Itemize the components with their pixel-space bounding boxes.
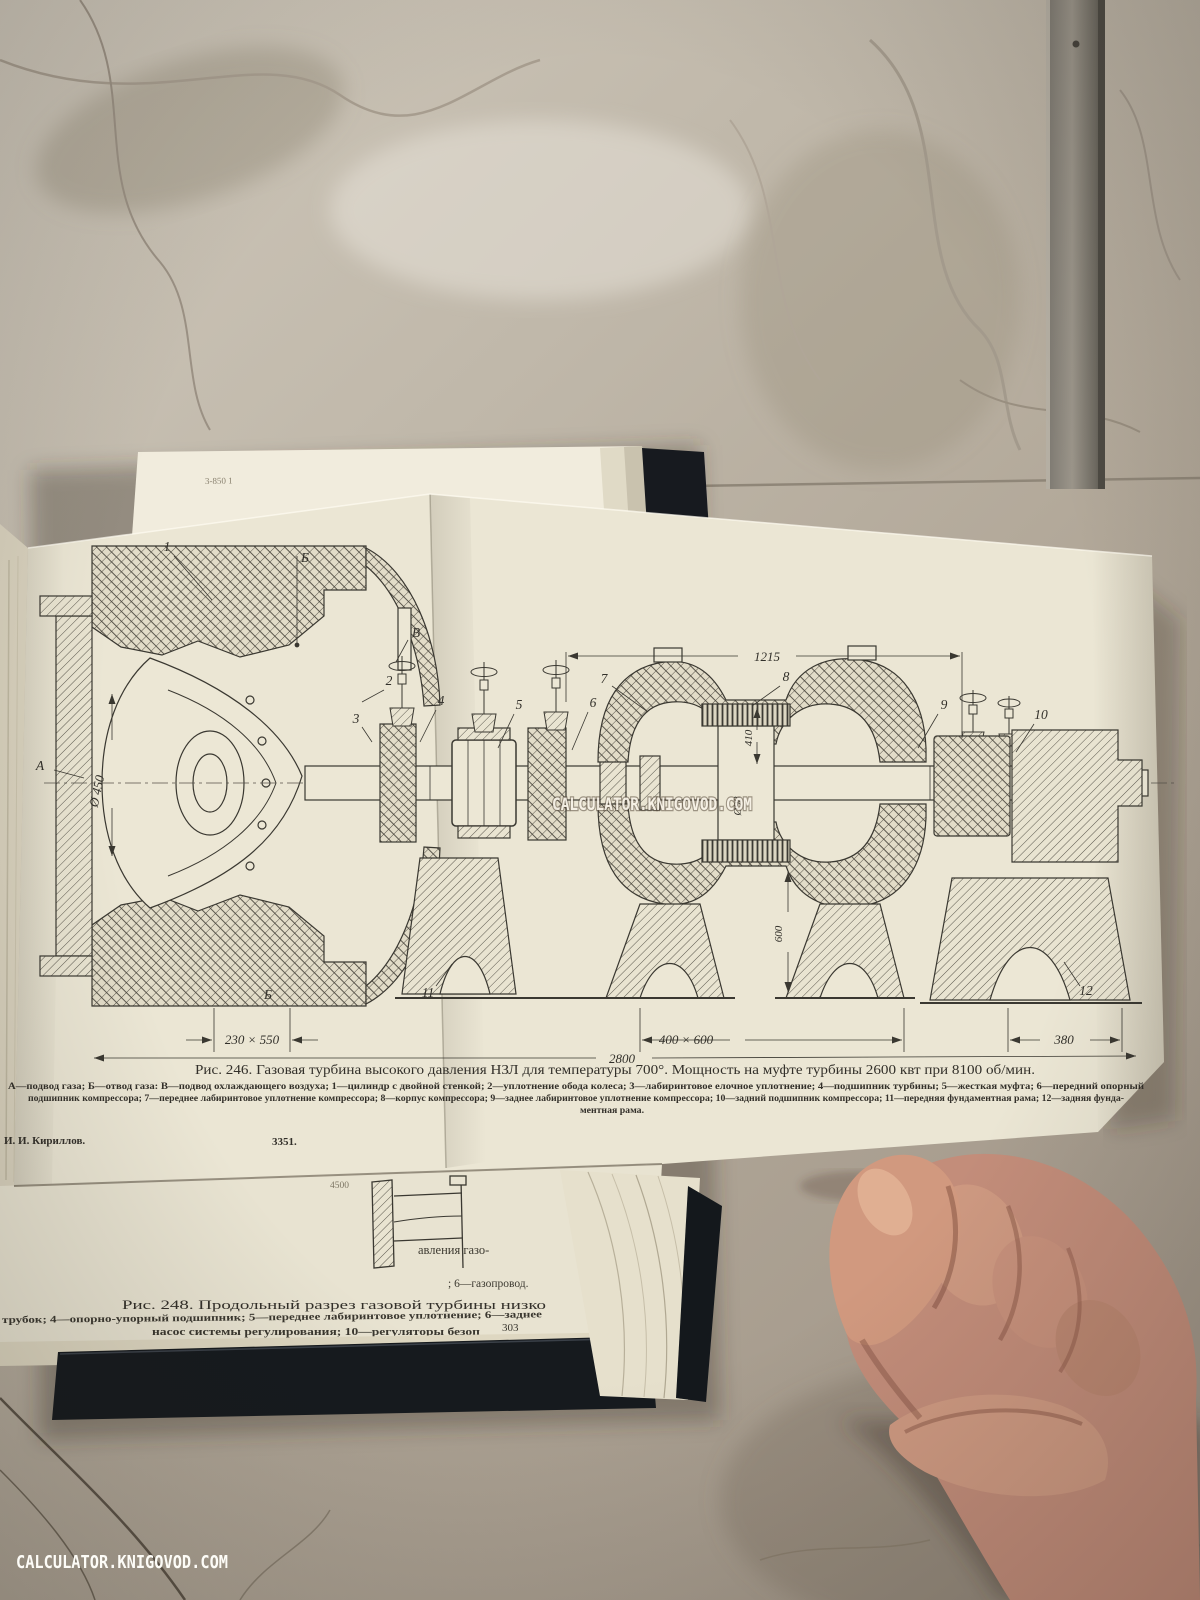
watermark-bottom-left: CALCULATOR.KNIGOVOD.COM	[16, 1553, 228, 1573]
watermark-center: CALCULATOR.KNIGOVOD.COM	[552, 795, 752, 814]
book-photo: 3-850 1 4500 авления газо- ; 6—газопрово…	[0, 0, 1200, 1600]
